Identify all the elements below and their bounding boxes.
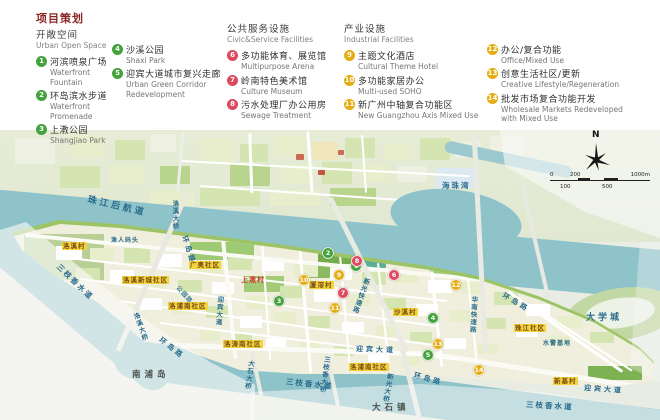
map-label: 洛浦南社区 [349, 363, 389, 371]
map-label: 沙溪村 [393, 308, 418, 316]
map-block [318, 170, 325, 175]
legend-item-number-badge: 3 [36, 124, 47, 135]
legend-item-label-zh: 岭南特色美术馆 [241, 74, 308, 87]
map-label: 珠江社区 [514, 324, 546, 332]
legend-item: 10多功能家居办公Multi-used SOHO [344, 74, 482, 96]
map-label: 洛溪大桥 [170, 200, 180, 230]
legend-group-title-en: Industrial Facilities [344, 35, 482, 44]
legend-column-civic: 公共服务设施Civic&Service Facilities6多功能体育、展览馆… [227, 10, 343, 123]
scale-bar-segment [604, 178, 618, 181]
legend-item-label-zh: 多功能体育、展览馆 [241, 49, 327, 62]
map-block [385, 144, 411, 160]
scale-tick: 1000m [631, 172, 650, 178]
legend-item-label-en: Wholesale Markets Redeveloped with Mixed… [501, 105, 627, 124]
legend-item-label-zh: 河滨喷泉广场 [50, 55, 107, 68]
legend-item-label-en: Waterfront Fountain [50, 68, 114, 87]
legend-item-row: 11新广州中轴复合功能区 [344, 98, 482, 111]
map-label: 华南快速路 [467, 296, 479, 334]
compass-north-label: N [592, 130, 600, 140]
legend-item-number-badge: 4 [112, 44, 123, 55]
map-label: 大学城 [586, 310, 622, 323]
legend-item-label-en: Sewage Treatment [241, 111, 343, 120]
scale-bar: 0 200 1000m 100 500 [550, 172, 650, 192]
map-block [240, 144, 268, 162]
map-marker-2: 2 [322, 247, 334, 259]
map-block [212, 282, 234, 294]
map-label: 新基村 [553, 377, 578, 385]
map-label: 洛溪村 [62, 242, 87, 250]
map-block [275, 136, 305, 156]
page-title: 项目策划 [36, 10, 114, 26]
map-label: 迎宾大道 [584, 383, 625, 396]
map-label: 厦滘村 [309, 281, 334, 289]
legend-item-label-zh: 污水处理厂办公用房 [241, 98, 327, 111]
legend-item-number-badge: 14 [487, 93, 498, 104]
map-block [444, 338, 466, 349]
legend-column-industrial: 产业设施Industrial Facilities9主题文化酒店Cultural… [344, 10, 482, 123]
map-label: 洛溪新城社区 [122, 276, 169, 284]
legend-item-number-badge: 5 [112, 68, 123, 79]
map-block [110, 164, 144, 184]
map-label: 上漖村 [241, 275, 265, 285]
map-block [322, 162, 352, 184]
legend-column-industrial-2: 12办公/复合功能Office/Mixed Use13创意生活社区/更新Crea… [487, 10, 653, 126]
map-block [590, 332, 614, 343]
map-block [345, 138, 375, 158]
map-block [150, 134, 176, 152]
legend-item-label-en: Creative Lifestyle/Regeneration [501, 80, 627, 89]
legend-item: 9主题文化酒店Cultural Theme Hotel [344, 49, 482, 71]
map-block [312, 142, 338, 160]
legend-item-label-en: Multipurpose Arena [241, 62, 343, 71]
legend-item-row: 9主题文化酒店 [344, 49, 482, 62]
map-label: 广奥社区 [189, 261, 221, 269]
legend-group-title-zh: 产业设施 [344, 21, 482, 35]
map-label: 海珠湾 [442, 180, 471, 191]
legend-item-label-zh: 多功能家居办公 [358, 74, 425, 87]
legend-item-number-badge: 2 [36, 90, 47, 101]
map-label: 洛浦南社区 [168, 302, 208, 310]
legend-item-label-zh: 创意生活社区/更新 [501, 67, 581, 80]
legend-item: 8污水处理厂办公用房Sewage Treatment [227, 98, 343, 120]
legend-item-label-en: New Guangzhou Axis Mixed Use [358, 111, 482, 120]
legend-group-title-zh: 公共服务设施 [227, 21, 343, 35]
legend-item: 13创意生活社区/更新Creative Lifestyle/Regenerati… [487, 67, 653, 89]
map-marker-11: 11 [329, 302, 341, 314]
master-plan-figure: 项目策划 开敞空间Urban Open Space1河滨喷泉广场Waterfro… [0, 0, 660, 420]
map-marker-14: 14 [473, 364, 485, 376]
legend-item-number-badge: 7 [227, 75, 238, 86]
legend-item-row: 4沙溪公园 [112, 43, 224, 56]
map-label: 渔人码头 [111, 235, 139, 244]
legend-item-number-badge: 6 [227, 50, 238, 61]
legend-column-open-space: 项目策划 开敞空间Urban Open Space1河滨喷泉广场Waterfro… [36, 10, 114, 147]
legend-item-label-zh: 环岛滨水步道 [50, 89, 107, 102]
map-marker-10: 10 [298, 274, 310, 286]
legend-item: 3上漖公园Shangjiao Park [36, 123, 114, 145]
map-block [338, 150, 344, 155]
map-block [484, 318, 506, 329]
legend-item-number-badge: 1 [36, 56, 47, 67]
legend-group-title-en: Urban Open Space [36, 41, 114, 50]
legend-item: 12办公/复合功能Office/Mixed Use [487, 43, 653, 65]
scale-tick: 500 [602, 184, 613, 190]
legend-item: 1河滨喷泉广场Waterfront Fountain [36, 55, 114, 87]
legend-item-label-zh: 上漖公园 [50, 123, 88, 136]
map-label: 迎宾大道 [213, 296, 225, 327]
legend-item-label-zh: 批发市场复合功能开发 [501, 92, 596, 105]
legend-item-label-en: Shangjiao Park [50, 136, 114, 145]
map-marker-5: 5 [422, 349, 434, 361]
legend-item: 11新广州中轴复合功能区New Guangzhou Axis Mixed Use [344, 98, 482, 120]
legend-item-row: 3上漖公园 [36, 123, 114, 136]
legend-item-row: 8污水处理厂办公用房 [227, 98, 343, 111]
legend-item-label-en: Urban Green Corridor Redevelopment [126, 80, 224, 99]
legend-item-label-en: Multi-used SOHO [358, 87, 482, 96]
map-label: 南浦岛 [132, 368, 170, 380]
scale-tick: 0 [550, 172, 554, 178]
map-block [296, 154, 304, 160]
legend-item-label-en: Office/Mixed Use [501, 56, 627, 65]
legend-item-label-zh: 沙溪公园 [126, 43, 164, 56]
legend-item-row: 14批发市场复合功能开发 [487, 92, 653, 105]
legend-item-label-en: Cultural Theme Hotel [358, 62, 482, 71]
map-block [160, 166, 190, 184]
map-block [124, 248, 150, 263]
legend-item-label-en: Culture Museum [241, 87, 343, 96]
legend-item-number-badge: 8 [227, 99, 238, 110]
scale-bar-line [550, 180, 650, 181]
legend-item-row: 12办公/复合功能 [487, 43, 653, 56]
map-marker-9: 9 [333, 269, 345, 281]
legend-item-number-badge: 11 [344, 99, 355, 110]
map-marker-8: 8 [351, 255, 363, 267]
legend-item-label-en: Waterfront Promenade [50, 102, 114, 121]
legend-group-header: 产业设施Industrial Facilities [344, 21, 482, 44]
legend-item-label-zh: 新广州中轴复合功能区 [358, 98, 453, 111]
legend-item: 2环岛滨水步道Waterfront Promenade [36, 89, 114, 121]
legend-item: 4沙溪公园Shaxi Park [112, 43, 224, 65]
map-marker-4: 4 [427, 312, 439, 324]
legend-item: 14批发市场复合功能开发Wholesale Markets Redevelope… [487, 92, 653, 124]
legend-item-label-zh: 办公/复合功能 [501, 43, 562, 56]
map-block [200, 138, 234, 162]
map-block [200, 330, 220, 341]
legend-item-label-zh: 主题文化酒店 [358, 49, 415, 62]
legend-item-row: 13创意生活社区/更新 [487, 67, 653, 80]
legend-item-label-zh: 迎宾大道城市复兴走廊 [126, 67, 221, 80]
scale-tick: 100 [560, 184, 571, 190]
map-label: 迎宾大道 [356, 344, 396, 355]
legend-item-row: 10多功能家居办公 [344, 74, 482, 87]
map-block [478, 344, 498, 354]
map-label: 洛涛南社区 [223, 340, 263, 348]
map-block [115, 140, 145, 160]
legend-item: 7岭南特色美术馆Culture Museum [227, 74, 343, 96]
map-marker-3: 3 [273, 295, 285, 307]
map-label: 水警基地 [543, 338, 571, 347]
legend-group-header: 开敞空间Urban Open Space [36, 27, 114, 50]
map-marker-6: 6 [388, 269, 400, 281]
legend-item-row: 2环岛滨水步道 [36, 89, 114, 102]
legend-item: 6多功能体育、展览馆Multipurpose Arena [227, 49, 343, 71]
map-block [314, 290, 338, 302]
map-canvas: 珠江后航道海珠湾洛溪大桥环岛路渔人码头洛溪村三枝香水道洛溪新城社区广奥社区上漖村… [0, 130, 660, 420]
map-marker-13: 13 [432, 338, 444, 350]
map-marker-7: 7 [337, 287, 349, 299]
legend-column-open-space-2: 4沙溪公园Shaxi Park5迎宾大道城市复兴走廊Urban Green Co… [112, 10, 224, 101]
legend-item-label-en: Shaxi Park [126, 56, 224, 65]
legend-item-number-badge: 12 [487, 44, 498, 55]
legend-item-number-badge: 10 [344, 75, 355, 86]
legend-item-row: 6多功能体育、展览馆 [227, 49, 343, 62]
legend-item: 5迎宾大道城市复兴走廊Urban Green Corridor Redevelo… [112, 67, 224, 99]
legend-item-row: 1河滨喷泉广场 [36, 55, 114, 68]
legend-item-row: 7岭南特色美术馆 [227, 74, 343, 87]
legend-group-title-en: Civic&Service Facilities [227, 35, 343, 44]
map-label: 大石镇 [372, 401, 410, 413]
legend-group-header: 公共服务设施Civic&Service Facilities [227, 21, 343, 44]
legend-group-title-zh: 开敞空间 [36, 27, 114, 41]
map-block [60, 166, 100, 188]
legend-item-number-badge: 13 [487, 68, 498, 79]
scale-bar-segment [578, 178, 590, 181]
legend: 项目策划 开敞空间Urban Open Space1河滨喷泉广场Waterfro… [0, 0, 660, 130]
legend-item-row: 5迎宾大道城市复兴走廊 [112, 67, 224, 80]
legend-item-number-badge: 9 [344, 50, 355, 61]
map-marker-12: 12 [450, 279, 462, 291]
